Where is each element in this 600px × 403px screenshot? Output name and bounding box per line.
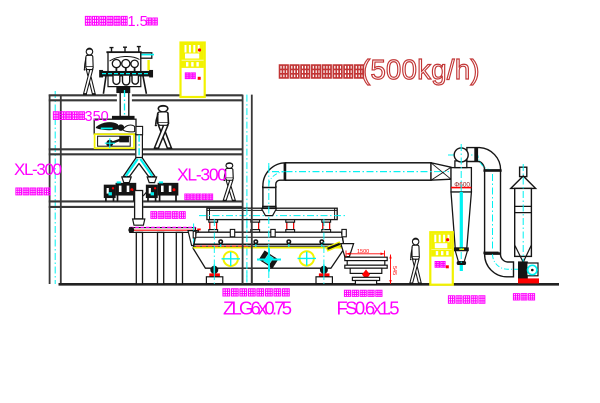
svg-text:FS0.6x1.5: FS0.6x1.5 (337, 298, 400, 319)
svg-text:ZLG6x0.75: ZLG6x0.75 (223, 298, 292, 319)
svg-text:XL-300: XL-300 (14, 160, 62, 179)
svg-text:350: 350 (85, 109, 109, 125)
svg-text:1500: 1500 (357, 249, 369, 255)
svg-text:XL-300: XL-300 (177, 165, 227, 185)
svg-text:1.5: 1.5 (128, 14, 148, 30)
svg-text:545: 545 (391, 266, 397, 275)
svg-text:(500kg/h): (500kg/h) (361, 54, 480, 85)
